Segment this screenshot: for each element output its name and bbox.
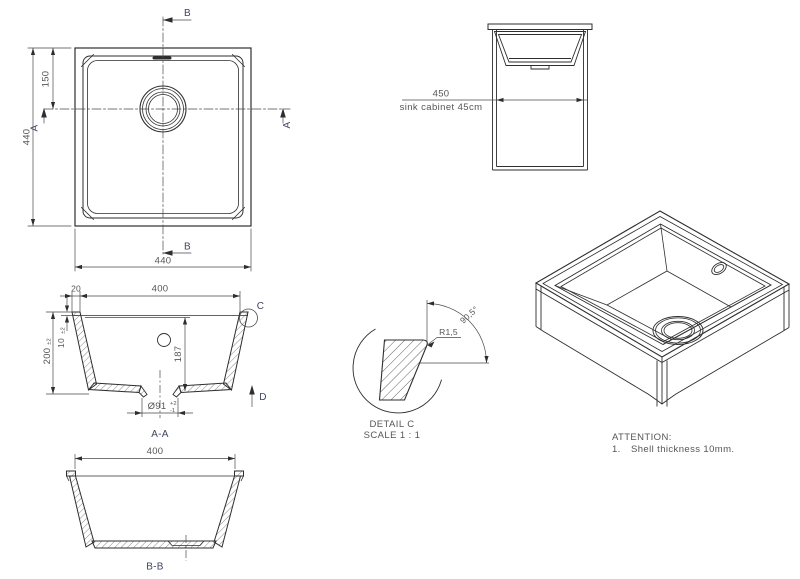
section-aa: 20 400 200 ±2 10 ±2 187 Ø91 +2 -1 C D A-… [42, 284, 267, 441]
aa-dimension-lines [46, 291, 252, 417]
direction-d-marker: D [259, 392, 267, 403]
cabinet-caption: sink cabinet 45cm [400, 102, 483, 113]
drawing-canvas: 440 150 440 B B A A 450 sink cabinet 45c… [0, 0, 800, 579]
iso-view [536, 211, 789, 407]
iso-overflow-hole [710, 260, 729, 277]
cabinet-sink-section [495, 32, 586, 70]
aa-dim-shell: 10 [56, 338, 66, 348]
aa-dim-shell-tol: ±2 [61, 327, 67, 333]
aa-dim-drain-tol-plus: +2 [170, 401, 177, 407]
top-dim-drain-offset: 150 [41, 71, 52, 88]
section-aa-label: A-A [151, 429, 169, 440]
aa-wall-right [224, 312, 249, 390]
notes-title: ATTENTION: [612, 432, 672, 443]
detail-c-view: R1,5 90,5° DETAIL C SCALE 1 : 1 [353, 300, 489, 441]
top-dim-width: 440 [155, 256, 172, 267]
notes: ATTENTION: 1. Shell thickness 10mm. [612, 432, 734, 455]
notes-item-text: Shell thickness 10mm. [631, 444, 734, 455]
section-b-marker-bottom: B [184, 242, 191, 253]
iso-floor [607, 271, 731, 340]
aa-floor-left [89, 383, 141, 393]
detail-scale: SCALE 1 : 1 [364, 430, 421, 441]
overflow-slot [153, 57, 172, 60]
detail-title: DETAIL C [370, 419, 415, 430]
top-view: 440 150 440 B B A A [22, 8, 294, 271]
bb-wall-right [214, 476, 241, 547]
top-view-dimension-arrows [31, 17, 286, 269]
section-bb-label: B-B [146, 562, 164, 573]
aa-dim-depth: 200 [42, 348, 53, 365]
bb-floor [92, 541, 216, 548]
countertop [488, 24, 592, 30]
aa-dim-rim: 20 [71, 284, 81, 294]
iso-opening-inner [561, 228, 765, 342]
iso-drain-ring-3 [662, 321, 695, 339]
drawing-page: 440 150 440 B B A A 450 sink cabinet 45c… [0, 0, 800, 579]
aa-dim-drain: Ø91 [148, 401, 167, 412]
aa-dim-opening: 400 [152, 284, 169, 295]
bb-flange-right [235, 471, 244, 476]
section-bb: 400 B-B [67, 446, 244, 573]
section-b-marker-top: B [184, 8, 191, 19]
cabinet-view: 450 sink cabinet 45cm [400, 24, 592, 170]
section-a-marker-right: A [282, 121, 293, 128]
aa-wall-left [72, 312, 97, 390]
notes-item-number: 1. [612, 444, 621, 455]
aa-overflow-hole [158, 334, 171, 347]
iso-overflow-hole-inner [713, 263, 725, 274]
detail-radius-label: R1,5 [439, 327, 458, 337]
detail-c-marker: C [257, 301, 265, 312]
aa-dim-inner-depth: 187 [173, 346, 184, 363]
cabinet-dim-width: 450 [433, 89, 450, 100]
section-a-marker-left: A [30, 124, 41, 131]
aa-dim-depth-tol: ±2 [47, 338, 53, 344]
bb-flange-left [67, 471, 76, 476]
iso-drain-ring-1 [653, 317, 703, 345]
detail-section-body [380, 340, 428, 400]
bb-wall-left [70, 476, 95, 547]
detail-angle-label: 90,5° [458, 304, 480, 325]
aa-dim-drain-tol-minus: -1 [170, 408, 175, 414]
iso-rim-second [543, 217, 783, 352]
bb-dim-opening: 400 [147, 446, 164, 457]
